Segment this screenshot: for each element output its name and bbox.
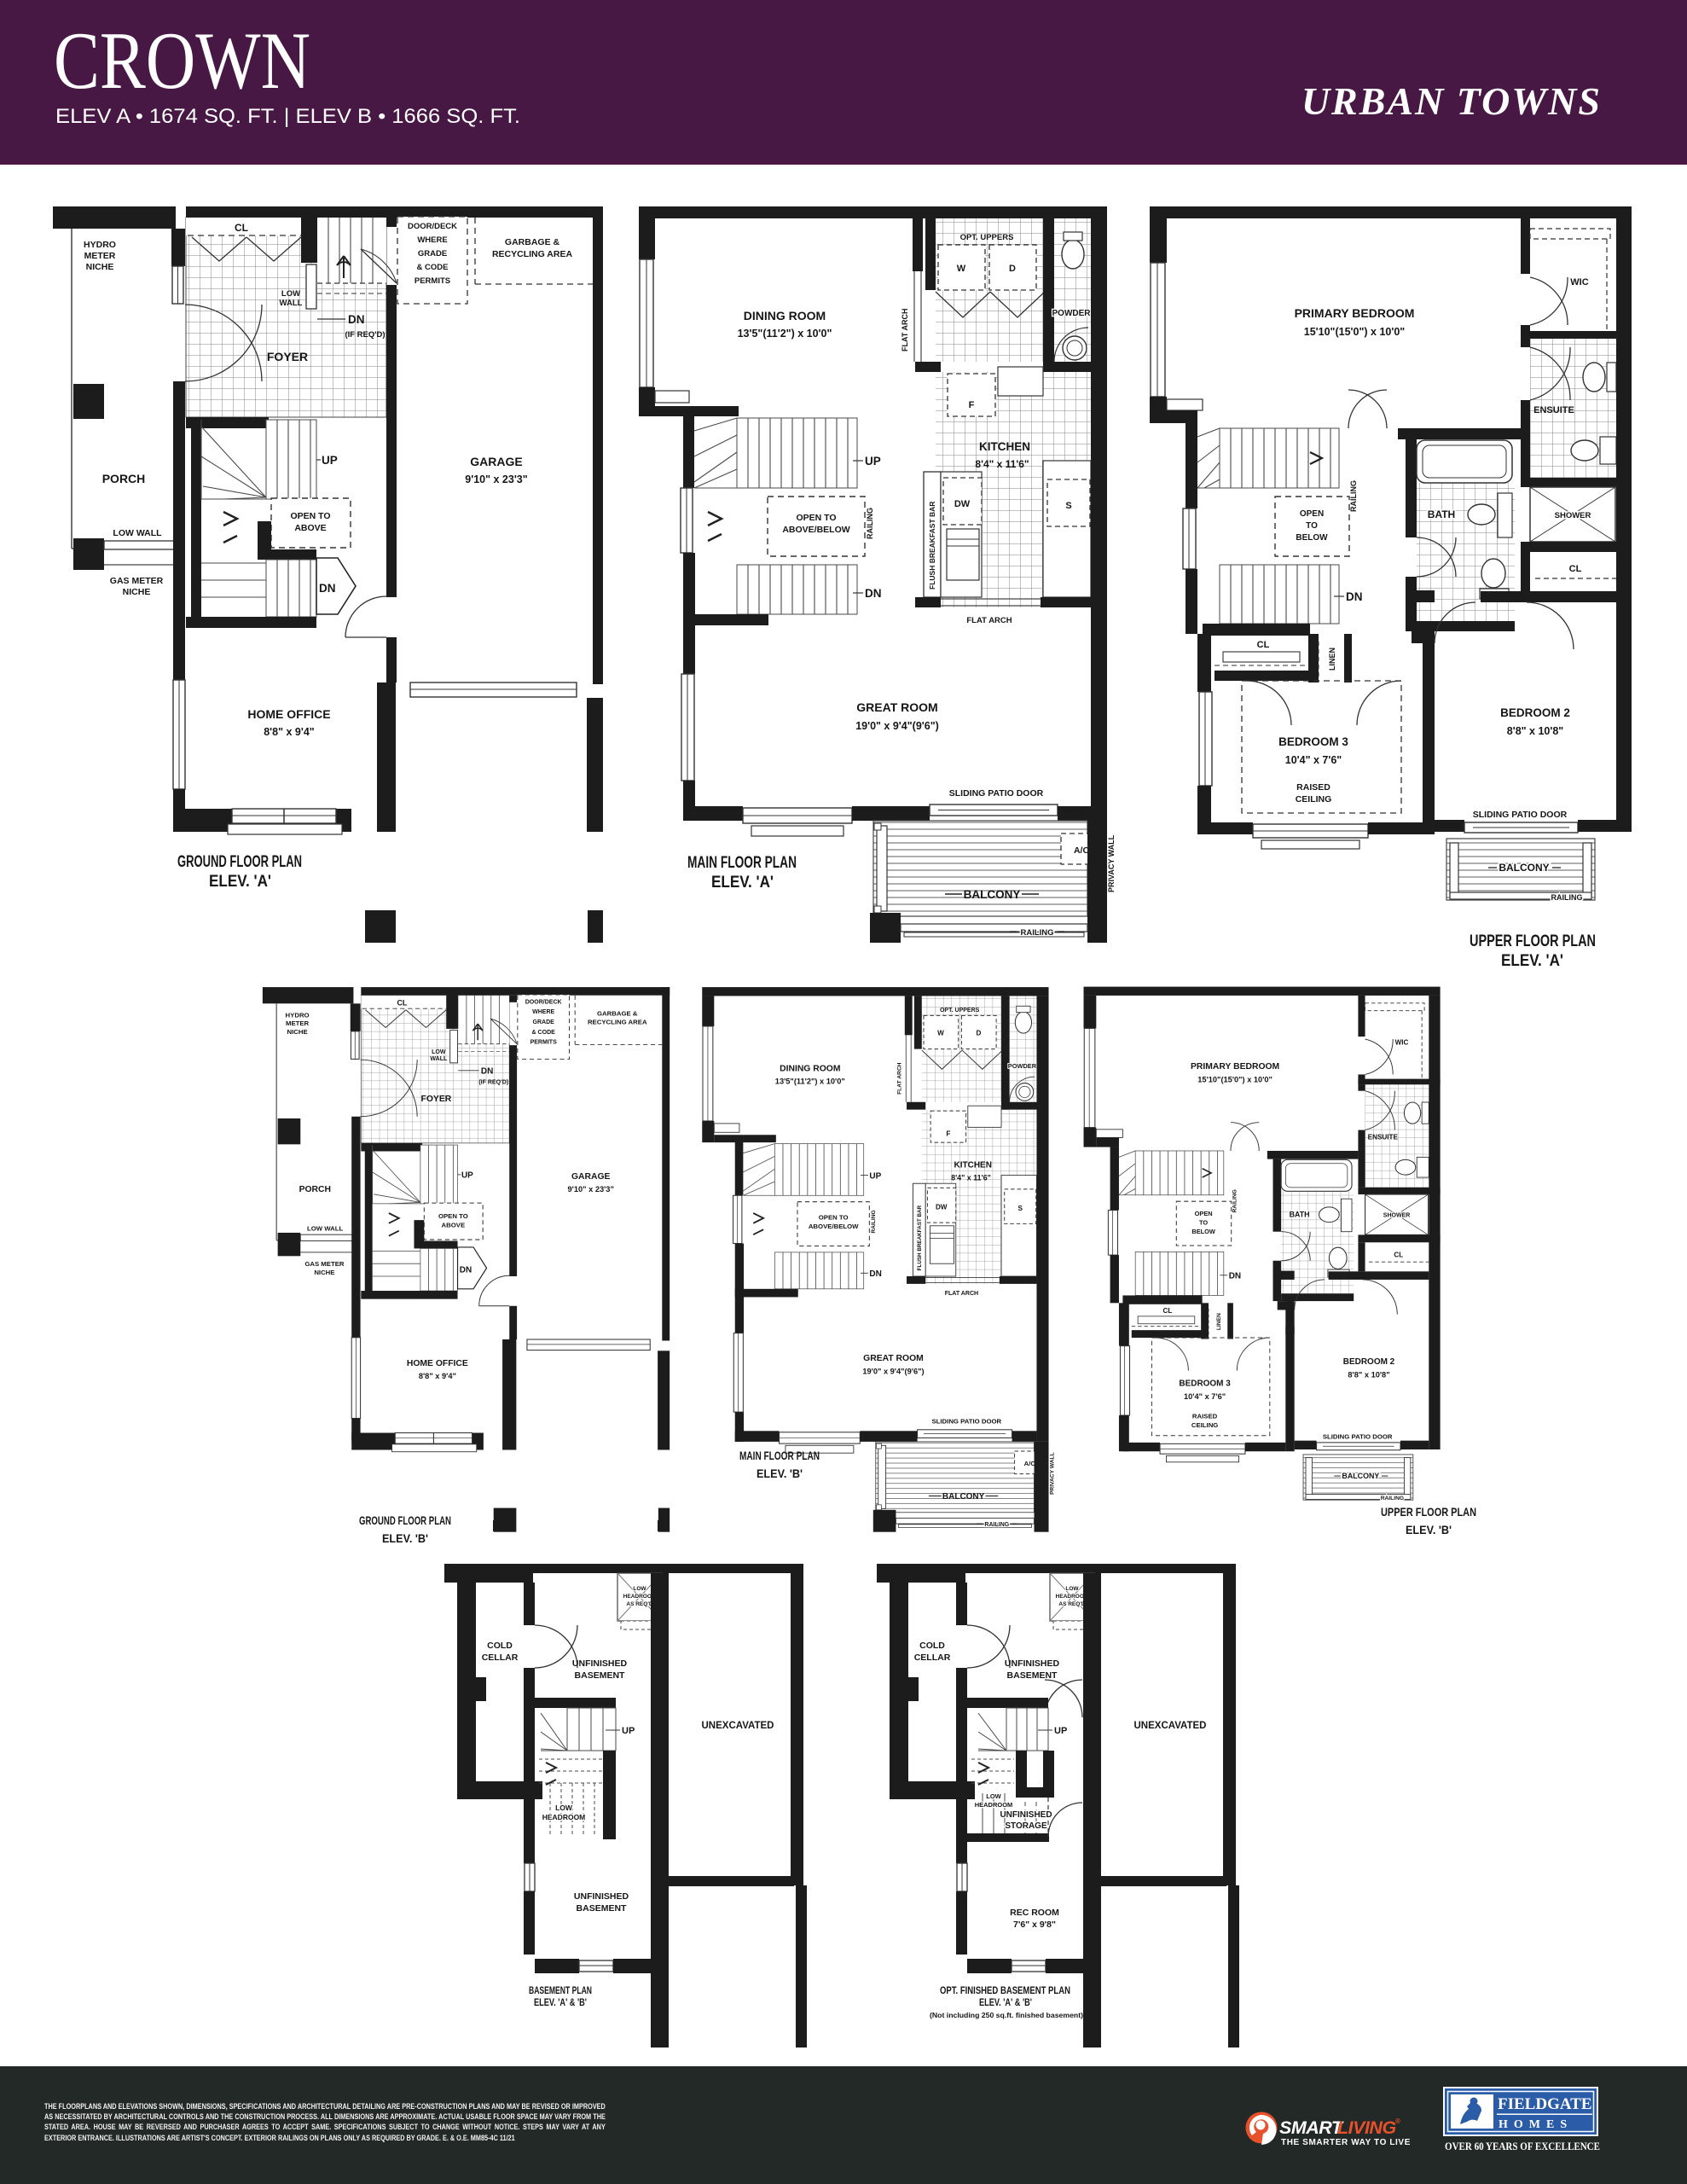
svg-text:BELOW: BELOW bbox=[1296, 533, 1328, 543]
svg-text:BASEMENT: BASEMENT bbox=[1007, 1670, 1058, 1681]
svg-text:TO: TO bbox=[1306, 521, 1318, 531]
svg-text:ELEV. 'A' & 'B': ELEV. 'A' & 'B' bbox=[979, 1998, 1032, 2008]
svg-text:RAISED: RAISED bbox=[1296, 782, 1330, 793]
svg-text:REC ROOM: REC ROOM bbox=[1010, 1908, 1059, 1918]
svg-text:BATH: BATH bbox=[1428, 508, 1455, 520]
svg-text:BASEMENT PLAN: BASEMENT PLAN bbox=[529, 1986, 592, 1996]
svg-text:LINEN: LINEN bbox=[1328, 648, 1336, 671]
svg-text:GROUND FLOOR PLAN: GROUND FLOOR PLAN bbox=[177, 853, 302, 871]
svg-text:SHOWER: SHOWER bbox=[1555, 511, 1591, 520]
svg-text:10'4" x 7'6": 10'4" x 7'6" bbox=[1285, 754, 1342, 766]
svg-text:FOYER: FOYER bbox=[267, 350, 308, 363]
svg-text:19'0" x 9'4"(9'6"): 19'0" x 9'4"(9'6") bbox=[855, 720, 939, 732]
svg-text:MAIN FLOOR PLAN: MAIN FLOOR PLAN bbox=[687, 854, 797, 872]
svg-text:UP: UP bbox=[622, 1726, 635, 1736]
svg-text:DN: DN bbox=[348, 313, 365, 326]
svg-text:BALCONY: BALCONY bbox=[964, 888, 1021, 901]
svg-text:OVER 60 YEARS OF EXCELLENCE: OVER 60 YEARS OF EXCELLENCE bbox=[1445, 2140, 1600, 2152]
svg-text:HEADROOM: HEADROOM bbox=[542, 1813, 586, 1821]
svg-text:F: F bbox=[969, 400, 975, 410]
svg-text:ABOVE/BELOW: ABOVE/BELOW bbox=[782, 525, 849, 535]
svg-text:COLD: COLD bbox=[919, 1641, 945, 1651]
svg-text:SLIDING PATIO DOOR: SLIDING PATIO DOOR bbox=[949, 788, 1044, 799]
svg-text:LOW: LOW bbox=[555, 1804, 573, 1812]
svg-text:DINING ROOM: DINING ROOM bbox=[744, 309, 826, 322]
svg-text:ELEV. 'B': ELEV. 'B' bbox=[757, 1467, 803, 1480]
svg-text:BASEMENT: BASEMENT bbox=[575, 1670, 626, 1681]
svg-text:ELEV. 'A': ELEV. 'A' bbox=[711, 874, 774, 892]
svg-text:UNFINISHED: UNFINISHED bbox=[1000, 1810, 1052, 1820]
svg-text:UP: UP bbox=[1054, 1726, 1067, 1736]
svg-text:LOW: LOW bbox=[1065, 1586, 1079, 1592]
svg-text:8'4" x 11'6": 8'4" x 11'6" bbox=[975, 458, 1029, 470]
svg-text:MAIN FLOOR PLAN: MAIN FLOOR PLAN bbox=[739, 1449, 820, 1462]
svg-text:SMART: SMART bbox=[1279, 2117, 1344, 2138]
svg-text:PORCH: PORCH bbox=[102, 472, 146, 485]
svg-text:RAILING: RAILING bbox=[1349, 480, 1358, 512]
svg-text:BEDROOM 2: BEDROOM 2 bbox=[1500, 706, 1570, 719]
svg-text:GRADE: GRADE bbox=[418, 249, 447, 258]
svg-text:ELEV. 'A': ELEV. 'A' bbox=[209, 873, 271, 891]
svg-text:UNEXCAVATED: UNEXCAVATED bbox=[702, 1721, 774, 1731]
svg-text:FLAT ARCH: FLAT ARCH bbox=[966, 616, 1012, 625]
svg-text:STORAGE: STORAGE bbox=[1005, 1821, 1047, 1831]
svg-text:UNFINISHED: UNFINISHED bbox=[574, 1891, 629, 1902]
svg-text:GROUND FLOOR PLAN: GROUND FLOOR PLAN bbox=[359, 1513, 451, 1527]
svg-text:HOME OFFICE: HOME OFFICE bbox=[247, 707, 330, 721]
svg-text:PERMITS: PERMITS bbox=[415, 276, 450, 286]
svg-text:ENSUITE: ENSUITE bbox=[1533, 405, 1574, 415]
svg-text:UP: UP bbox=[322, 454, 338, 467]
svg-text:9'10" x 23'3": 9'10" x 23'3" bbox=[465, 473, 527, 485]
svg-text:SLIDING PATIO DOOR: SLIDING PATIO DOOR bbox=[1473, 810, 1568, 820]
svg-text:15'10"(15'0") x 10'0": 15'10"(15'0") x 10'0" bbox=[1304, 326, 1406, 338]
svg-text:CL: CL bbox=[1569, 564, 1582, 574]
svg-text:RAILING: RAILING bbox=[866, 508, 874, 539]
svg-text:PRIMARY BEDROOM: PRIMARY BEDROOM bbox=[1295, 306, 1415, 320]
svg-text:OPEN TO: OPEN TO bbox=[796, 513, 836, 523]
svg-text:LOW: LOW bbox=[633, 1586, 646, 1592]
svg-text:7'6" x 9'8": 7'6" x 9'8" bbox=[1013, 1920, 1056, 1930]
svg-text:HOMES: HOMES bbox=[1499, 2118, 1573, 2131]
svg-text:13'5"(11'2") x 10'0": 13'5"(11'2") x 10'0" bbox=[738, 328, 832, 340]
svg-text:8'8" x 9'4": 8'8" x 9'4" bbox=[264, 726, 315, 738]
svg-text:DW: DW bbox=[954, 499, 971, 509]
svg-text:FLUSH BREAKFAST BAR: FLUSH BREAKFAST BAR bbox=[928, 502, 936, 590]
svg-text:UPPER FLOOR PLAN: UPPER FLOOR PLAN bbox=[1470, 932, 1596, 950]
svg-text:WHERE: WHERE bbox=[417, 235, 447, 245]
svg-text:KITCHEN: KITCHEN bbox=[979, 440, 1030, 453]
svg-text:D: D bbox=[1009, 264, 1016, 274]
svg-text:DOOR/DECK: DOOR/DECK bbox=[408, 222, 457, 231]
svg-text:BEDROOM 3: BEDROOM 3 bbox=[1278, 735, 1348, 748]
svg-text:LOW: LOW bbox=[281, 289, 300, 299]
svg-text:GARBAGE &: GARBAGE & bbox=[505, 237, 560, 247]
svg-text:LOW: LOW bbox=[986, 1792, 1001, 1800]
svg-text:LIVING: LIVING bbox=[1337, 2117, 1396, 2138]
svg-text:A/C: A/C bbox=[1074, 845, 1090, 856]
svg-text:DN: DN bbox=[865, 587, 882, 600]
svg-text:UP: UP bbox=[865, 455, 881, 468]
svg-text:CL: CL bbox=[1257, 640, 1270, 650]
svg-text:(Not including 250 sq.ft. fini: (Not including 250 sq.ft. finished basem… bbox=[930, 2012, 1083, 2019]
svg-text:CELLAR: CELLAR bbox=[482, 1653, 519, 1663]
svg-text:ELEV. 'A' & 'B': ELEV. 'A' & 'B' bbox=[534, 1998, 587, 2008]
svg-text:CELLAR: CELLAR bbox=[914, 1653, 951, 1663]
svg-text:DN: DN bbox=[319, 582, 336, 595]
svg-text:OPEN TO: OPEN TO bbox=[290, 511, 330, 521]
svg-text:ELEV. 'B': ELEV. 'B' bbox=[1406, 1523, 1452, 1536]
svg-text:OPT. UPPERS: OPT. UPPERS bbox=[960, 233, 1014, 242]
svg-text:& CODE: & CODE bbox=[417, 263, 449, 272]
svg-text:ELEV. 'B': ELEV. 'B' bbox=[382, 1531, 428, 1545]
svg-text:HEADROOM: HEADROOM bbox=[975, 1801, 1013, 1809]
svg-text:AS REQ'D: AS REQ'D bbox=[626, 1601, 652, 1607]
svg-text:8'8" x 10'8": 8'8" x 10'8" bbox=[1507, 725, 1564, 737]
svg-text:RAILING: RAILING bbox=[1020, 928, 1053, 938]
svg-text:®: ® bbox=[1395, 2117, 1400, 2125]
svg-text:GREAT ROOM: GREAT ROOM bbox=[856, 700, 937, 714]
svg-text:W: W bbox=[957, 264, 966, 274]
svg-text:NICHE: NICHE bbox=[86, 262, 114, 272]
svg-text:CL: CL bbox=[235, 222, 248, 234]
svg-text:DN: DN bbox=[1346, 590, 1363, 603]
svg-text:ABOVE: ABOVE bbox=[294, 523, 326, 533]
svg-text:FIELDGATE: FIELDGATE bbox=[1498, 2095, 1592, 2113]
svg-text:LOW WALL: LOW WALL bbox=[113, 528, 162, 538]
svg-text:PRIVACY WALL: PRIVACY WALL bbox=[1107, 834, 1116, 892]
svg-text:OPEN: OPEN bbox=[1300, 509, 1324, 519]
svg-text:METER: METER bbox=[84, 251, 116, 261]
svg-text:CEILING: CEILING bbox=[1296, 794, 1332, 804]
svg-text:UPPER FLOOR PLAN: UPPER FLOOR PLAN bbox=[1381, 1505, 1476, 1519]
svg-text:POWDER: POWDER bbox=[1052, 309, 1092, 318]
svg-text:FLAT ARCH: FLAT ARCH bbox=[901, 309, 909, 352]
svg-text:THE SMARTER WAY TO LIVE: THE SMARTER WAY TO LIVE bbox=[1281, 2138, 1411, 2147]
svg-text:RAILING: RAILING bbox=[1551, 893, 1583, 902]
svg-text:GARAGE: GARAGE bbox=[470, 455, 522, 468]
svg-text:NICHE: NICHE bbox=[123, 587, 151, 597]
svg-text:(IF REQ'D): (IF REQ'D) bbox=[345, 330, 385, 340]
svg-text:ELEV. 'A': ELEV. 'A' bbox=[1501, 952, 1563, 970]
svg-text:AS REQ'D: AS REQ'D bbox=[1058, 1601, 1085, 1607]
svg-text:BASEMENT: BASEMENT bbox=[577, 1903, 628, 1914]
svg-text:WALL: WALL bbox=[280, 299, 303, 308]
svg-text:COLD: COLD bbox=[487, 1641, 513, 1651]
svg-text:UNEXCAVATED: UNEXCAVATED bbox=[1134, 1721, 1207, 1731]
svg-text:WIC: WIC bbox=[1570, 277, 1588, 288]
svg-text:BALCONY: BALCONY bbox=[1499, 862, 1549, 874]
svg-text:S: S bbox=[1065, 501, 1071, 511]
svg-text:OPT. FINISHED BASEMENT PLAN: OPT. FINISHED BASEMENT PLAN bbox=[940, 1986, 1070, 1996]
svg-text:UNFINISHED: UNFINISHED bbox=[572, 1658, 628, 1669]
svg-text:HYDRO: HYDRO bbox=[84, 240, 116, 250]
svg-text:GAS METER: GAS METER bbox=[110, 576, 164, 586]
svg-text:UNFINISHED: UNFINISHED bbox=[1005, 1658, 1060, 1669]
svg-text:RECYCLING AREA: RECYCLING AREA bbox=[492, 249, 573, 259]
